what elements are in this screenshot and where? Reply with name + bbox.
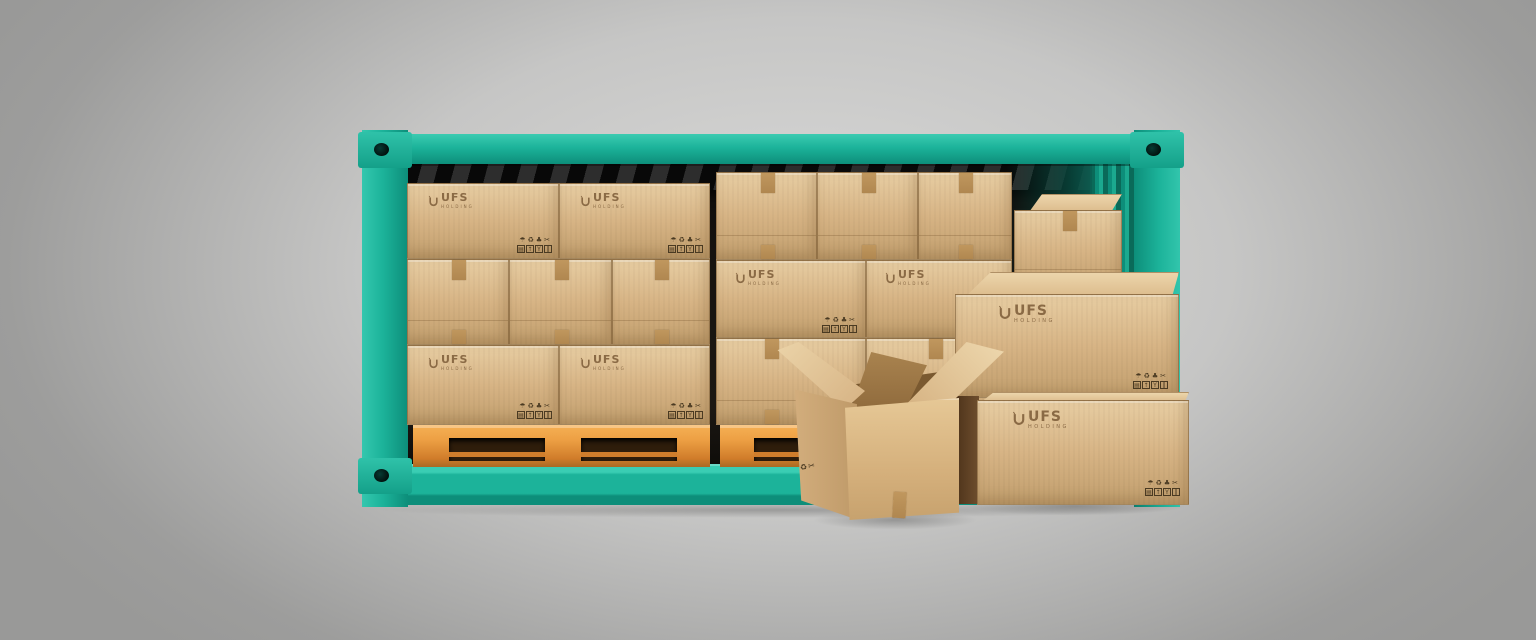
logo-text: UFS	[593, 192, 626, 203]
container-left-post	[362, 130, 408, 507]
stacking-limit-icon: ▤	[668, 245, 676, 253]
packaging-icons-row: ☂♻♣✂	[822, 317, 857, 324]
clamp-here-icon: ‖	[544, 245, 552, 253]
tape-strip	[555, 330, 569, 344]
wooden-pallet-left	[413, 425, 710, 467]
box-top-face	[955, 272, 1179, 296]
packaging-icons-row: ☂♻♣✂	[1133, 373, 1168, 380]
ufs-logo: UFSHOLDING	[885, 269, 931, 289]
packaging-icons-row: ☂♻♣✂	[668, 403, 703, 410]
packaging-icons-row: ▤↑Y‖	[1133, 381, 1168, 389]
clamp-here-icon: ‖	[1160, 381, 1168, 389]
packaging-icons-row: ▤↑Y‖	[668, 411, 703, 419]
logo-tagline: HOLDING	[441, 366, 474, 371]
tape-strip	[655, 330, 669, 344]
pallet-plank	[449, 452, 545, 457]
logo-text: UFS	[441, 192, 474, 203]
warehouse-scene: UFSHOLDING ☂♻♣✂ ▤↑Y‖ UFSHOLDING ☂♻♣✂ ▤↑Y…	[0, 0, 1536, 640]
packaging-pictograms: ☂♻♣✂ ▤↑Y‖	[668, 237, 703, 253]
cardboard-box	[509, 259, 612, 345]
this-way-up-icon: ↑	[1154, 488, 1162, 496]
fragile-icon: Y	[1151, 381, 1159, 389]
ufs-logo-mark-icon	[735, 270, 746, 289]
tape-strip	[452, 260, 466, 280]
tape-strip	[959, 245, 973, 259]
casting-hole-icon	[374, 469, 389, 482]
cardboard-box: UFSHOLDING ☂♻♣✂ ▤↑Y‖	[559, 345, 710, 425]
packaging-pictograms: ☂♻♣✂ ▤↑Y‖	[668, 403, 703, 419]
packaging-pictograms: ☂♻♣✂ ▤↑Y‖	[517, 403, 552, 419]
logo-tagline: HOLDING	[748, 281, 781, 286]
packaging-icons-row: ☂♻♣✂	[517, 403, 552, 410]
tape-strip	[929, 339, 943, 359]
packaging-icons-row: ▤↑Y‖	[1145, 488, 1180, 496]
clamp-here-icon: ‖	[849, 325, 857, 333]
cardboard-box: UFSHOLDING ☂♻♣✂ ▤↑Y‖	[407, 183, 559, 259]
logo-text: UFS	[748, 269, 781, 280]
cardboard-box	[918, 172, 1012, 260]
this-way-up-icon: ↑	[526, 411, 534, 419]
tape-strip	[765, 339, 779, 359]
stacking-limit-icon: ▤	[517, 411, 525, 419]
corner-casting	[358, 458, 412, 494]
ufs-logo-mark-icon	[428, 355, 439, 374]
cardboard-box: UFSHOLDING ☂♻♣✂ ▤↑Y‖	[716, 260, 866, 338]
tape-strip	[862, 245, 876, 259]
corner-casting	[1130, 132, 1184, 168]
clamp-here-icon: ‖	[695, 245, 703, 253]
logo-tagline: HOLDING	[898, 281, 931, 286]
clamp-here-icon: ‖	[1172, 488, 1180, 496]
logo-text: UFS	[1014, 304, 1055, 318]
tape-strip	[555, 260, 569, 280]
packaging-pictograms: ☂♻♣✂ ▤↑Y‖	[517, 237, 552, 253]
cardboard-box	[612, 259, 710, 345]
logo-text: UFS	[1028, 410, 1069, 424]
packaging-icons-row: ☂♻♣✂	[668, 237, 703, 244]
logo-text: UFS	[593, 354, 626, 365]
packaging-pictograms: ☂♻♣✂ ▤↑Y‖	[1133, 373, 1168, 389]
logo-tagline: HOLDING	[593, 204, 626, 209]
fragile-icon: Y	[535, 245, 543, 253]
cardboard-box: UFSHOLDING ☂♻♣✂ ▤↑Y‖	[407, 345, 559, 425]
casting-hole-icon	[374, 143, 389, 156]
this-way-up-icon: ↑	[526, 245, 534, 253]
fragile-icon: Y	[1163, 488, 1171, 496]
cardboard-box: UFSHOLDING ☂♻♣✂ ▤↑Y‖	[559, 183, 710, 259]
tape-strip	[959, 173, 973, 193]
packaging-icons-row: ▤↑Y‖	[517, 411, 552, 419]
stacking-limit-icon: ▤	[822, 325, 830, 333]
ufs-logo: UFSHOLDING	[428, 354, 474, 374]
ufs-logo: UFSHOLDING	[735, 269, 781, 289]
ufs-logo-mark-icon	[998, 305, 1012, 325]
ufs-logo: UFSHOLDING	[580, 354, 626, 374]
this-way-up-icon: ↑	[831, 325, 839, 333]
tape-strip	[761, 245, 775, 259]
clamp-here-icon: ‖	[695, 411, 703, 419]
logo-text: UFS	[441, 354, 474, 365]
corner-casting	[358, 132, 412, 168]
fragile-icon: Y	[686, 245, 694, 253]
logo-tagline: HOLDING	[1028, 425, 1069, 430]
tape-strip	[452, 330, 466, 344]
casting-hole-icon	[1146, 143, 1161, 156]
packaging-icons-row: ☂♻♣✂	[517, 237, 552, 244]
this-way-up-icon: ↑	[677, 245, 685, 253]
tape-strip	[862, 173, 876, 193]
packaging-icons-row: ▤↑Y‖	[517, 245, 552, 253]
ufs-logo-mark-icon	[885, 270, 896, 289]
ufs-logo-mark-icon	[1012, 411, 1026, 431]
logo-tagline: HOLDING	[1014, 319, 1055, 324]
cardboard-box	[716, 172, 817, 260]
stacking-limit-icon: ▤	[668, 411, 676, 419]
ufs-logo: UFSHOLDING	[580, 192, 626, 212]
pallet-slot	[449, 438, 545, 461]
pallet-plank	[581, 452, 677, 457]
cardboard-box: UFSHOLDING ☂♻♣✂ ▤↑Y‖	[977, 400, 1189, 505]
stacking-limit-icon: ▤	[1133, 381, 1141, 389]
cardboard-box	[407, 259, 509, 345]
tape-strip	[892, 492, 906, 519]
stacking-limit-icon: ▤	[1145, 488, 1153, 496]
stacking-limit-icon: ▤	[517, 245, 525, 253]
tape-strip	[655, 260, 669, 280]
ufs-logo-mark-icon	[428, 193, 439, 212]
logo-tagline: HOLDING	[593, 366, 626, 371]
ufs-logo-mark-icon	[580, 355, 591, 374]
container-top-rail	[370, 134, 1170, 164]
packaging-pictograms: ☂♻♣✂ ▤↑Y‖	[822, 317, 857, 333]
fragile-icon: Y	[686, 411, 694, 419]
packaging-icons-row: ☂♻♣✂	[1145, 480, 1180, 487]
packaging-pictograms: ☂♻♣✂ ▤↑Y‖	[1145, 480, 1180, 496]
cardboard-box: UFSHOLDING ☂♻♣✂ ▤↑Y‖	[955, 294, 1179, 398]
packaging-icons-row: ▤↑Y‖	[668, 245, 703, 253]
fragile-icon: Y	[535, 411, 543, 419]
logo-tagline: HOLDING	[441, 204, 474, 209]
tape-strip	[1063, 211, 1077, 231]
packaging-icons-row: ▤↑Y‖	[822, 325, 857, 333]
logo-text: UFS	[898, 269, 931, 280]
cardboard-box	[817, 172, 918, 260]
ufs-logo: UFSHOLDING	[428, 192, 474, 212]
ufs-logo: UFSHOLDING	[1012, 410, 1069, 431]
ufs-logo: UFSHOLDING	[998, 304, 1055, 325]
fragile-icon: Y	[840, 325, 848, 333]
pallet-slot	[581, 438, 677, 461]
tape-strip	[765, 410, 779, 424]
this-way-up-icon: ↑	[1142, 381, 1150, 389]
clamp-here-icon: ‖	[544, 411, 552, 419]
tape-strip	[761, 173, 775, 193]
ufs-logo-mark-icon	[580, 193, 591, 212]
this-way-up-icon: ↑	[677, 411, 685, 419]
